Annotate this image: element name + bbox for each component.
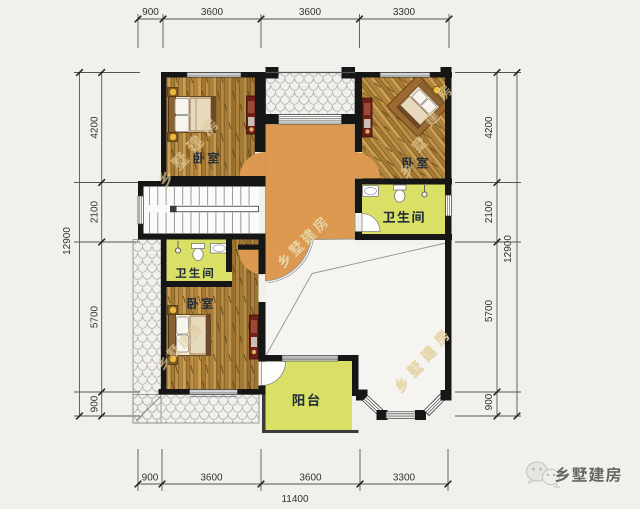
svg-text:2100: 2100 [90, 200, 101, 223]
svg-text:900: 900 [142, 473, 159, 484]
svg-text:3600: 3600 [299, 473, 322, 484]
svg-text:5700: 5700 [90, 305, 101, 328]
svg-text:5700: 5700 [484, 299, 495, 322]
svg-text:3300: 3300 [393, 7, 416, 18]
svg-text:900: 900 [484, 393, 495, 410]
svg-text:3600: 3600 [299, 7, 322, 18]
svg-text:11400: 11400 [281, 494, 309, 504]
svg-text:12900: 12900 [62, 227, 73, 255]
svg-text:3600: 3600 [201, 7, 224, 18]
svg-text:4200: 4200 [484, 116, 495, 139]
svg-text:900: 900 [142, 7, 159, 18]
svg-text:4200: 4200 [90, 116, 101, 139]
svg-text:900: 900 [90, 395, 101, 412]
svg-text:2100: 2100 [484, 200, 495, 223]
svg-text:12900: 12900 [503, 235, 514, 263]
svg-text:3300: 3300 [393, 473, 416, 484]
svg-text:3600: 3600 [200, 473, 223, 484]
